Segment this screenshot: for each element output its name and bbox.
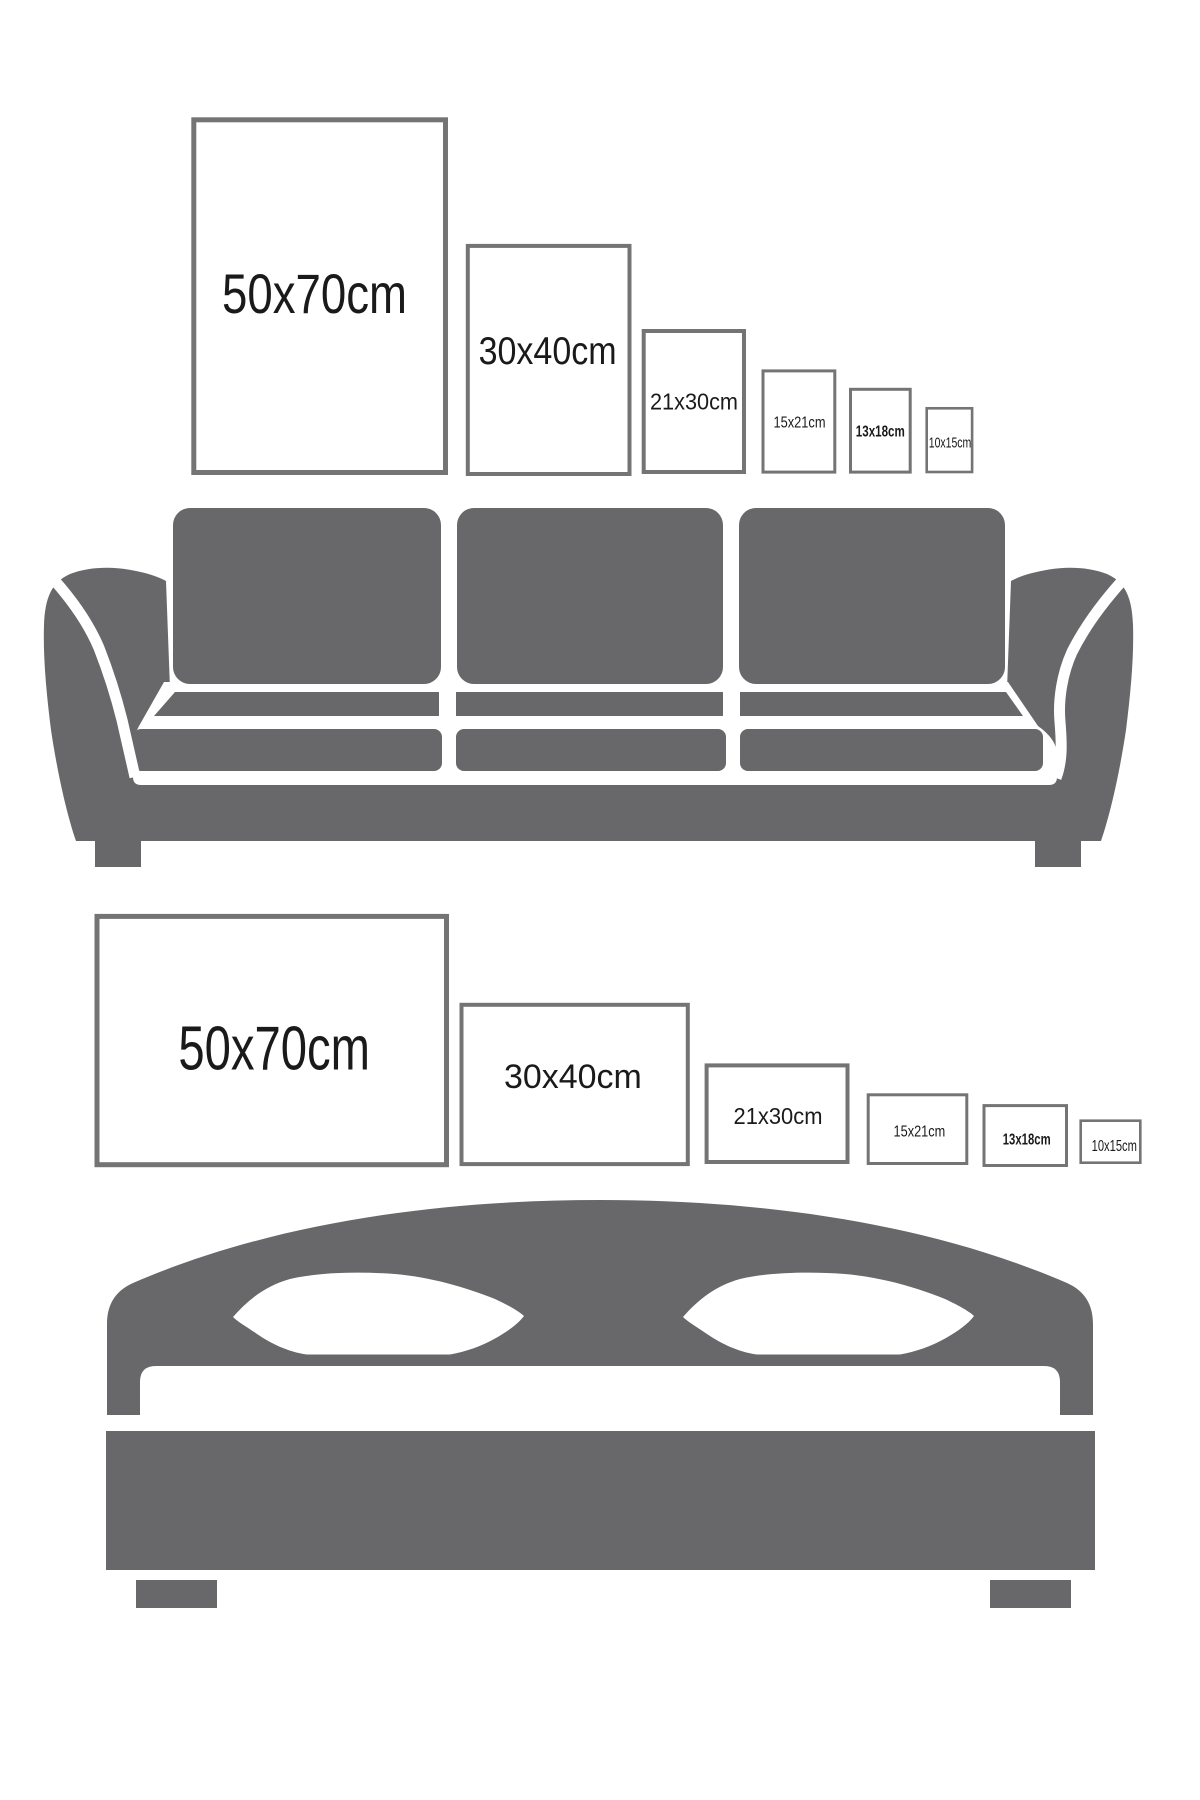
svg-text:13x18cm: 13x18cm — [1003, 1131, 1051, 1148]
svg-text:50x70cm: 50x70cm — [222, 262, 407, 325]
svg-text:15x21cm: 15x21cm — [894, 1122, 946, 1140]
svg-text:21x30cm: 21x30cm — [734, 1103, 823, 1129]
svg-text:30x40cm: 30x40cm — [504, 1058, 642, 1096]
svg-text:30x40cm: 30x40cm — [479, 330, 617, 373]
svg-text:15x21cm: 15x21cm — [774, 415, 826, 432]
svg-text:21x30cm: 21x30cm — [650, 388, 738, 414]
svg-text:50x70cm: 50x70cm — [178, 1015, 370, 1084]
svg-text:10x15cm: 10x15cm — [929, 435, 972, 452]
svg-text:13x18cm: 13x18cm — [856, 423, 905, 440]
svg-text:10x15cm: 10x15cm — [1092, 1138, 1137, 1155]
